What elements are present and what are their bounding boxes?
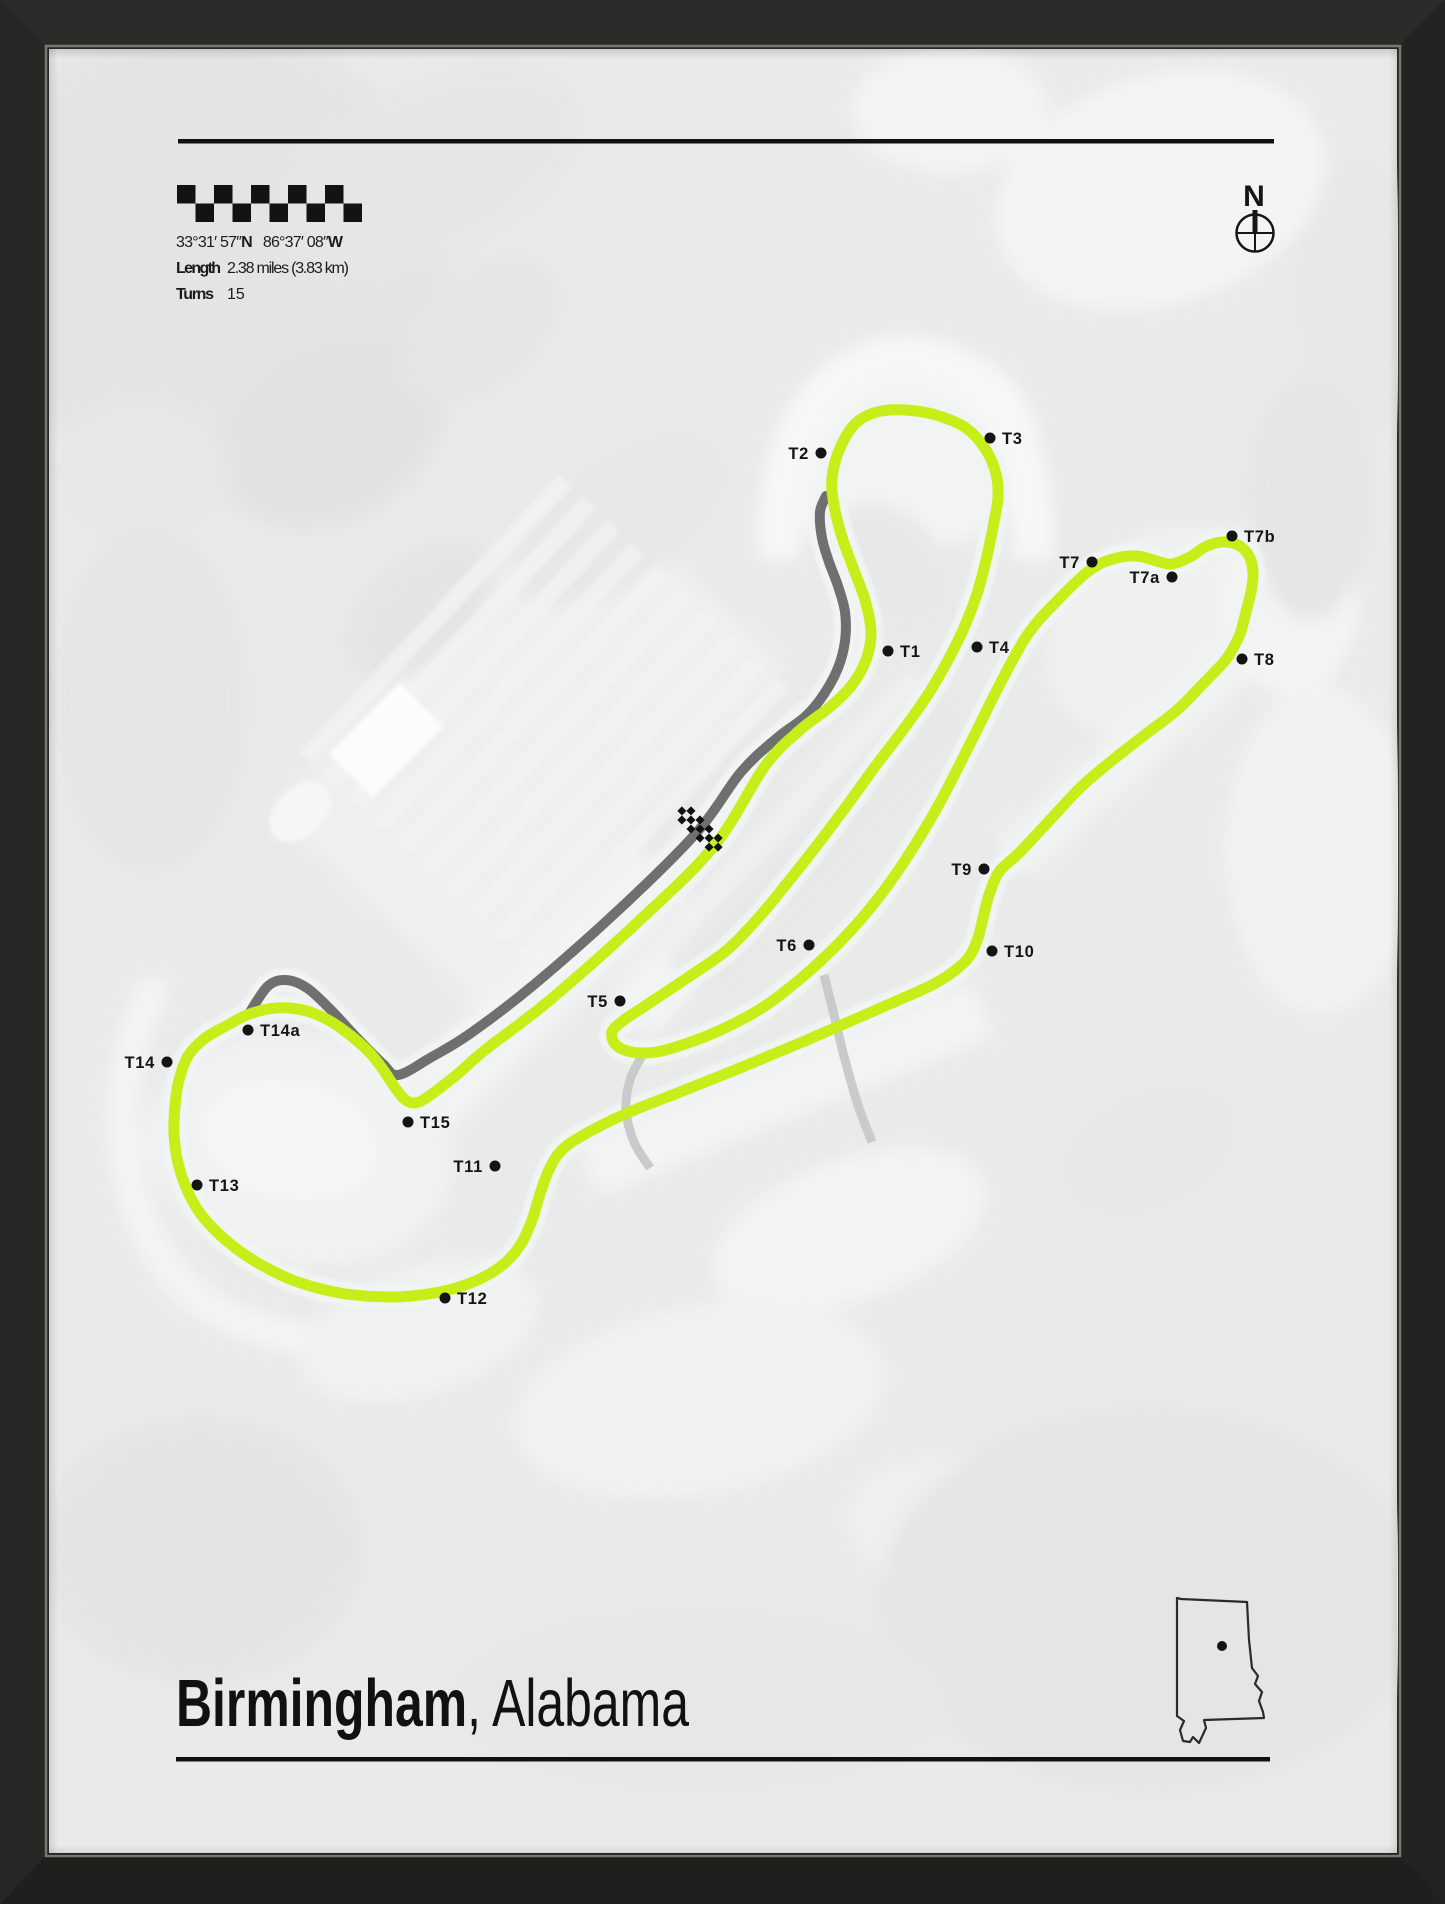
svg-text:Turns: Turns <box>176 286 214 303</box>
svg-text:T8: T8 <box>1254 651 1275 669</box>
svg-text:T3: T3 <box>1002 430 1023 448</box>
svg-text:T11: T11 <box>453 1158 483 1176</box>
svg-text:N: N <box>1243 180 1265 213</box>
svg-text:T2: T2 <box>788 445 809 463</box>
svg-text:15: 15 <box>227 286 245 303</box>
svg-text:T13: T13 <box>209 1177 240 1195</box>
svg-text:T7a: T7a <box>1129 569 1160 587</box>
svg-text:T15: T15 <box>420 1114 451 1132</box>
svg-text:T10: T10 <box>1004 943 1035 961</box>
svg-text:T7b: T7b <box>1244 528 1275 546</box>
svg-text:T7: T7 <box>1059 554 1080 572</box>
svg-text:Birmingham, Alabama: Birmingham, Alabama <box>176 1666 690 1741</box>
svg-text:T1: T1 <box>900 643 921 661</box>
svg-text:T4: T4 <box>989 639 1010 657</box>
svg-text:T6: T6 <box>776 937 797 955</box>
svg-text:T9: T9 <box>951 861 972 879</box>
svg-text:33°31′ 57″N 86°37′ 08″W: 33°31′ 57″N 86°37′ 08″W <box>176 234 344 251</box>
svg-text:T14: T14 <box>124 1054 155 1072</box>
svg-text:2.38 miles (3.83 km): 2.38 miles (3.83 km) <box>227 260 349 277</box>
svg-text:T14a: T14a <box>260 1022 301 1040</box>
svg-text:Length: Length <box>176 260 221 277</box>
svg-text:T5: T5 <box>587 993 608 1011</box>
svg-text:T12: T12 <box>457 1290 488 1308</box>
